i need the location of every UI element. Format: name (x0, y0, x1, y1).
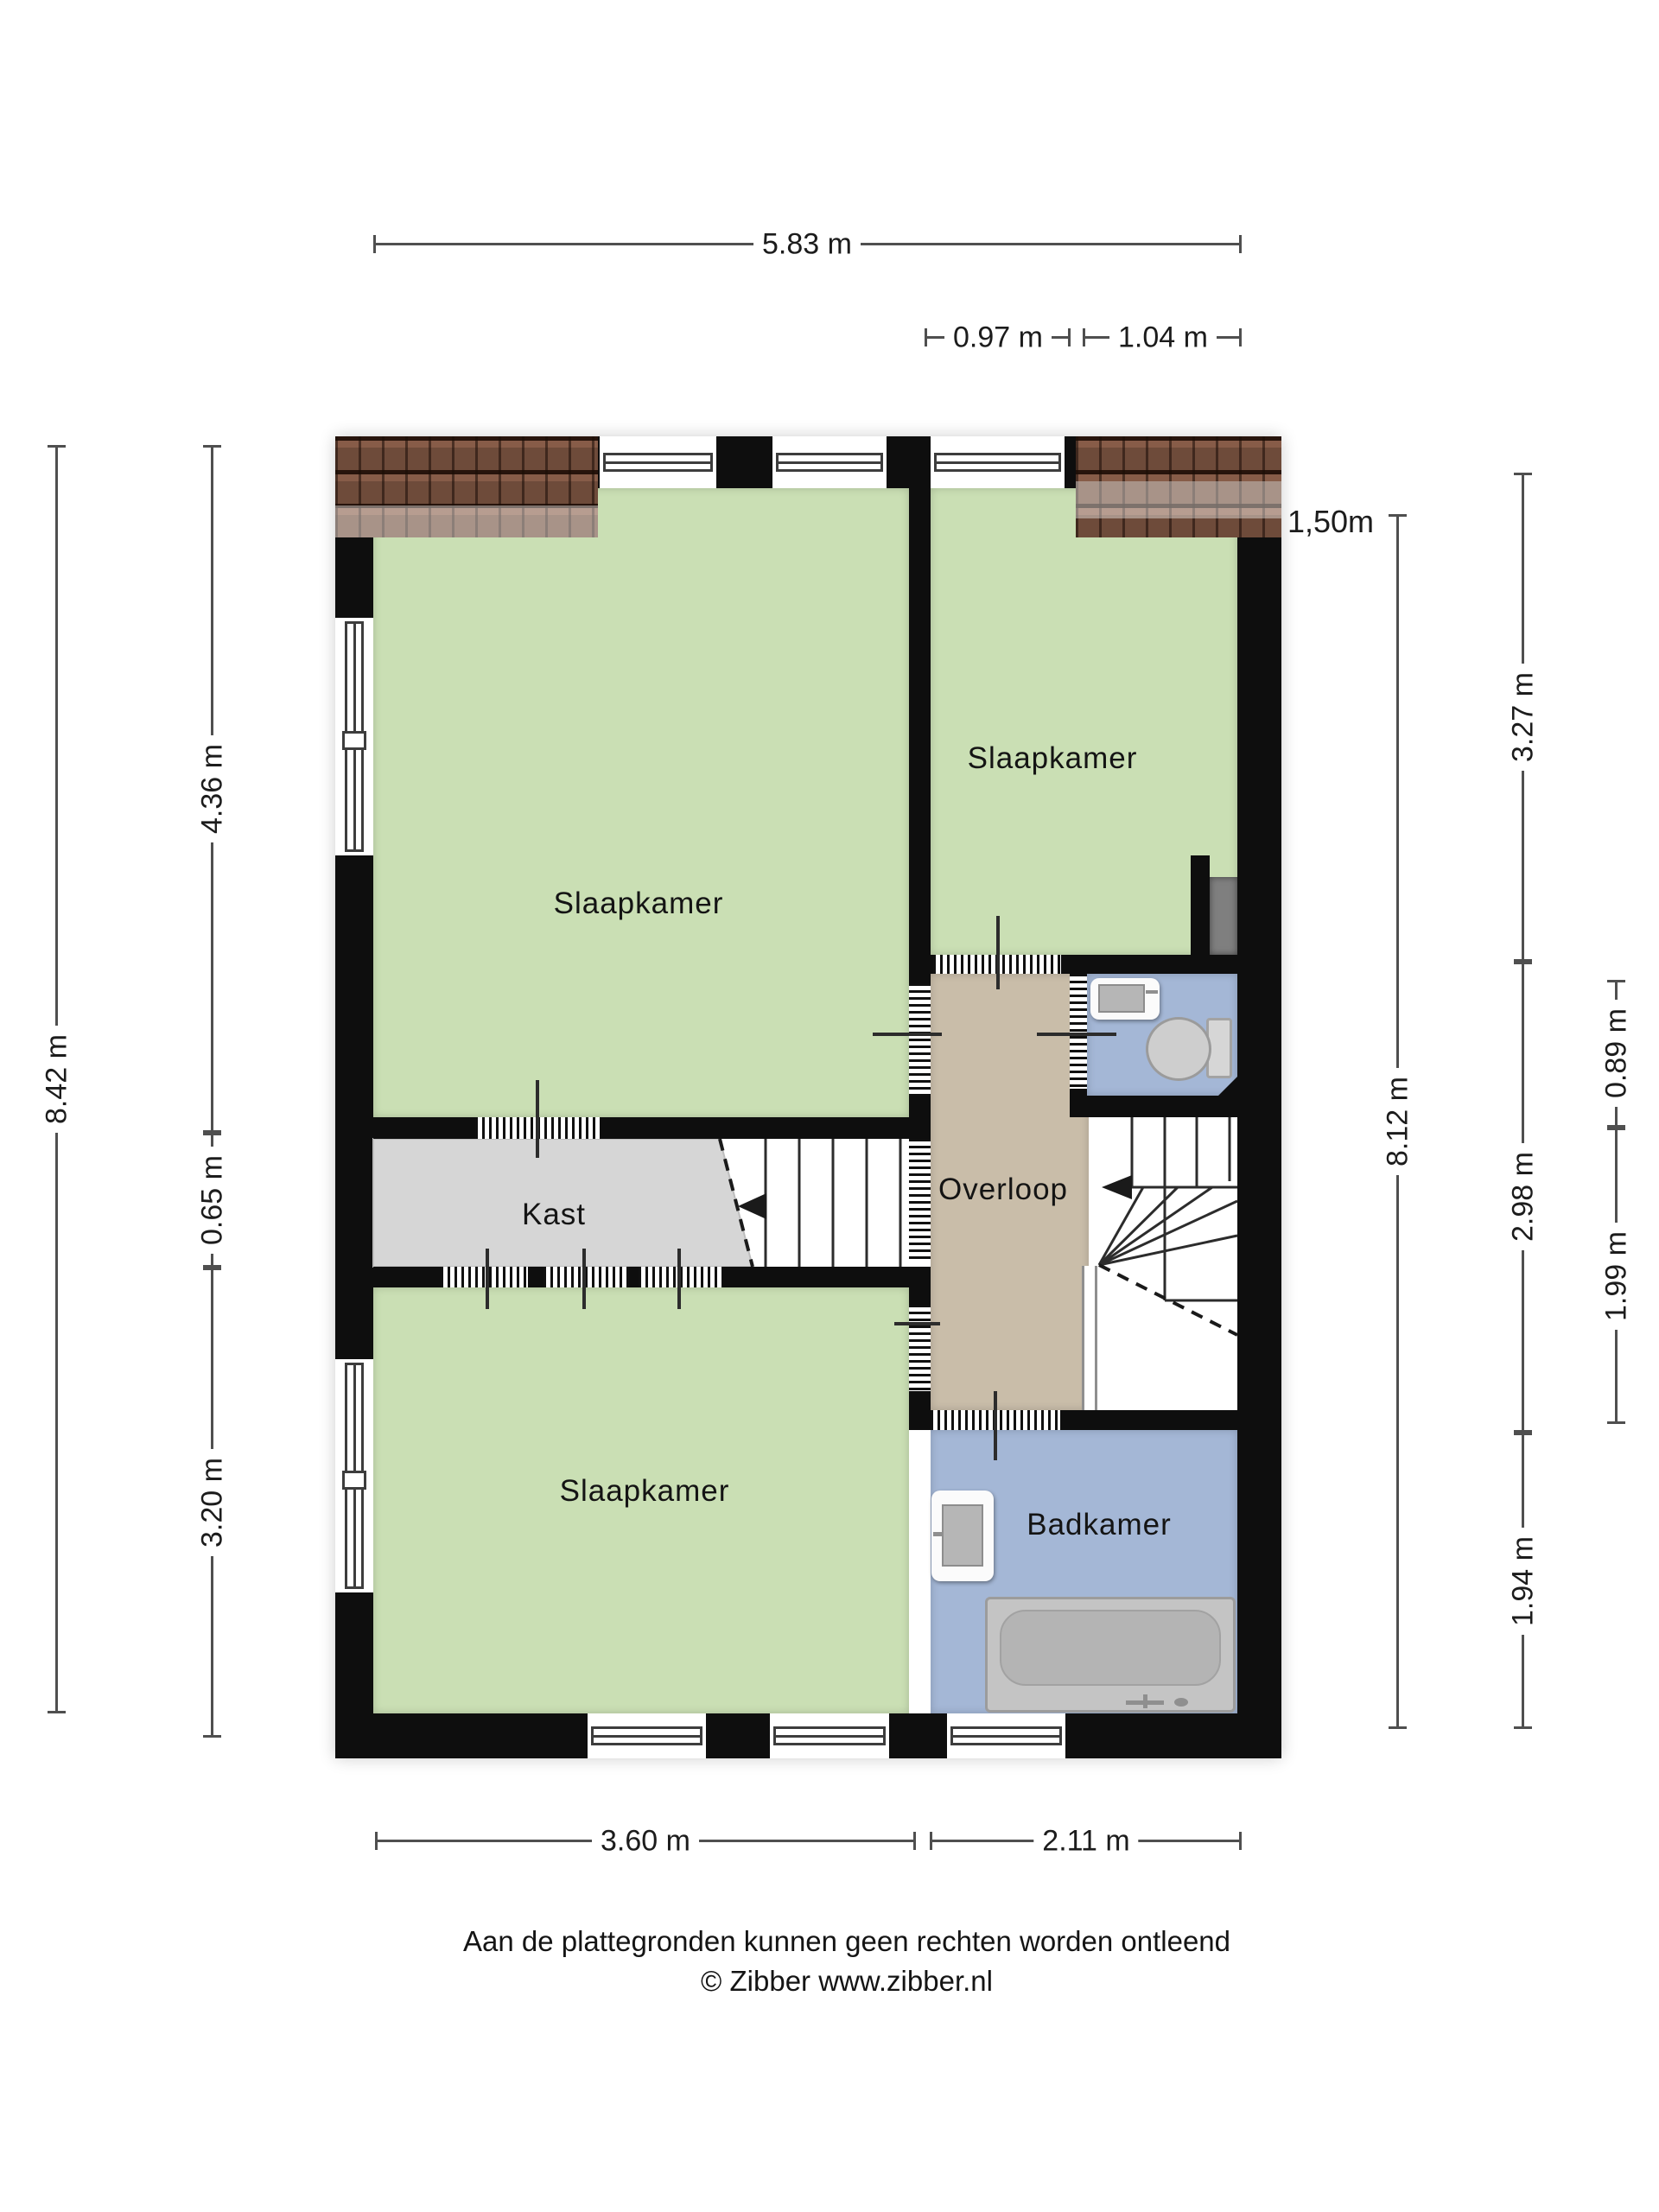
door-toilet (1070, 974, 1087, 1089)
wall-right (1237, 436, 1281, 1758)
door-closet-a (441, 1267, 528, 1287)
dim-right-inner-lower: 1.99 m (1599, 1223, 1636, 1330)
room-bedroom-top-left (373, 488, 909, 1117)
door-bedroom2-landing (933, 955, 1061, 974)
toilet-sink-icon (1090, 978, 1160, 1020)
dim-bottom-left: 3.60 m (592, 1823, 699, 1860)
bathtub-icon (985, 1597, 1236, 1713)
dim-knee-wall: 1,50m (1279, 502, 1382, 542)
footer-copyright: © Zibber www.zibber.nl (328, 1965, 1365, 1998)
dim-right-total: 8.12 m (1380, 1068, 1417, 1175)
dim-top-total: 5.83 m (753, 226, 861, 264)
door-bedroom1-closet (475, 1117, 600, 1139)
label-closet: Kast (522, 1198, 586, 1232)
door-closet-b (543, 1267, 629, 1287)
label-bedroom-top-left: Slaapkamer (554, 887, 724, 921)
window-bottom-3 (947, 1713, 1065, 1758)
stair-balustrade (1082, 1266, 1097, 1410)
dim-top-door: 0.97 m (944, 320, 1052, 357)
bathroom-sink-icon (931, 1491, 994, 1581)
window-top-3 (931, 436, 1065, 488)
dim-right-upper: 3.27 m (1505, 664, 1542, 771)
door-closet-c (639, 1267, 723, 1287)
dim-left-upper: 4.36 m (194, 735, 232, 842)
window-left-2 (335, 1359, 373, 1592)
footer-disclaimer: Aan de plattegronden kunnen geen rechten… (328, 1925, 1365, 1958)
label-bedroom-top-right: Slaapkamer (968, 741, 1138, 776)
dim-right-middle: 2.98 m (1505, 1143, 1542, 1250)
door-bedroom3-landing (909, 1305, 931, 1391)
wall-niche-jog (1191, 855, 1210, 955)
window-left-1 (335, 618, 373, 855)
floorplan: Slaapkamer Slaapkamer Slaapkamer Kast Ov… (335, 436, 1281, 1758)
window-bottom-2 (770, 1713, 889, 1758)
roof-tiles-left (335, 436, 598, 537)
label-bedroom-bottom: Slaapkamer (560, 1474, 730, 1509)
dim-left-lower: 3.20 m (194, 1449, 232, 1556)
label-bathroom: Badkamer (1027, 1508, 1172, 1542)
door-bedroom1-landing (909, 983, 931, 1096)
toilet-icon (1146, 1017, 1211, 1081)
dim-right-lower: 1.94 m (1505, 1528, 1542, 1635)
dim-left-total: 8.42 m (39, 1026, 76, 1133)
roof-tiles-right (1076, 436, 1281, 537)
window-top-1 (600, 436, 716, 488)
dim-top-toilet: 1.04 m (1109, 320, 1217, 357)
stairs-straight-run (753, 1139, 909, 1267)
footer: Aan de plattegronden kunnen geen rechten… (328, 1925, 1365, 1998)
wall-above-closet (373, 1117, 931, 1139)
dim-left-closet: 0.65 m (194, 1147, 232, 1254)
stairwell (1089, 1117, 1237, 1410)
dim-bottom-right: 2.11 m (1033, 1823, 1138, 1860)
wall-divider-bottom-a (909, 1287, 931, 1305)
floorplan-page: Slaapkamer Slaapkamer Slaapkamer Kast Ov… (0, 0, 1659, 2212)
wall-below-toilet (1070, 1096, 1237, 1117)
door-bathroom (931, 1410, 1060, 1430)
window-bottom-1 (588, 1713, 706, 1758)
wall-divider-bottom-b (909, 1391, 931, 1410)
window-top-2 (772, 436, 887, 488)
niche-recess (1210, 877, 1237, 955)
label-landing: Overloop (938, 1173, 1068, 1207)
wall-toilet-west (1070, 1089, 1087, 1117)
door-stairs-landing (909, 1139, 931, 1262)
dim-right-inner-upper: 0.89 m (1599, 1000, 1636, 1107)
